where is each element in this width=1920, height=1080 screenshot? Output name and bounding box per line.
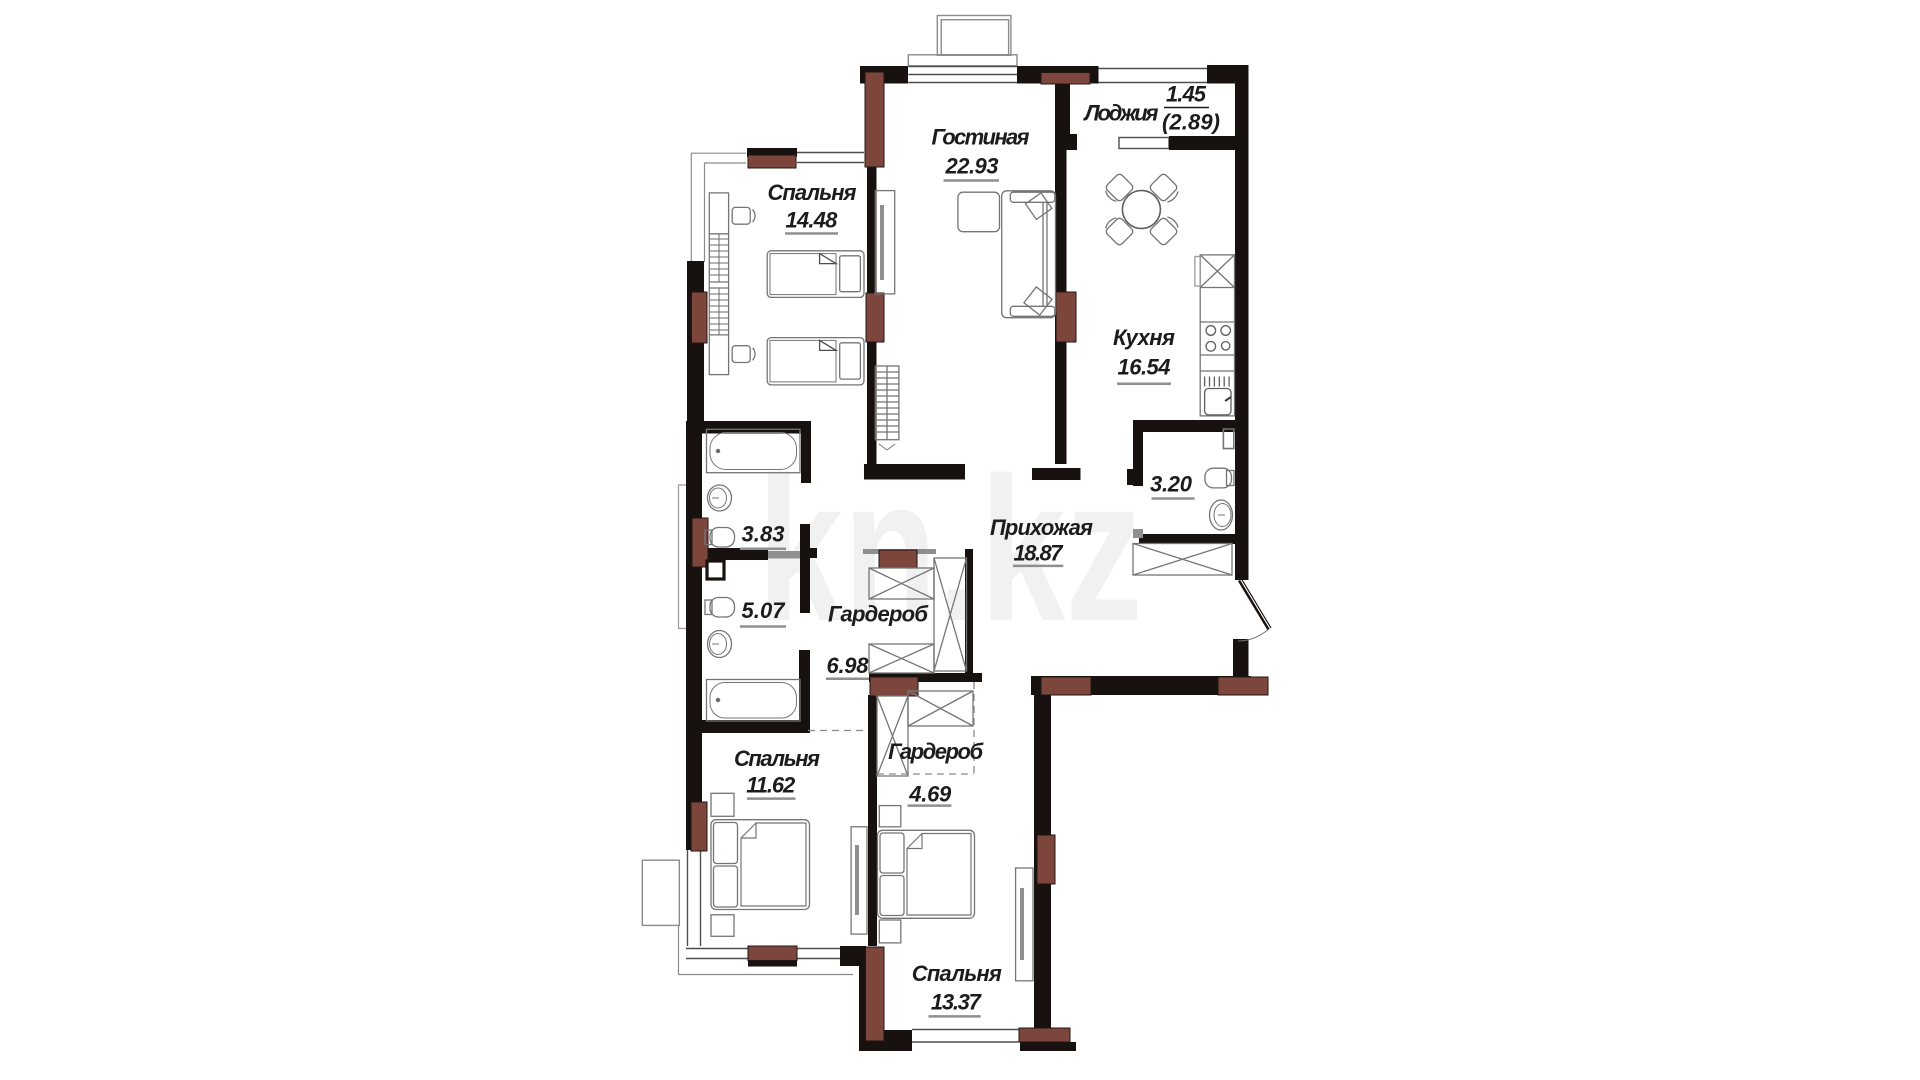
svg-text:6.98: 6.98: [827, 653, 870, 678]
svg-text:22.93: 22.93: [945, 153, 999, 178]
svg-text:Гостиная: Гостиная: [932, 124, 1030, 149]
svg-text:18.87: 18.87: [1014, 540, 1065, 565]
svg-text:13.37: 13.37: [931, 990, 983, 1015]
svg-text:Гардероб: Гардероб: [888, 739, 984, 764]
svg-text:Лоджия: Лоджия: [1083, 101, 1159, 126]
svg-text:3.83: 3.83: [742, 522, 785, 547]
svg-text:Прихожая: Прихожая: [990, 515, 1093, 540]
svg-text:3.20: 3.20: [1150, 472, 1193, 497]
svg-text:16.54: 16.54: [1118, 355, 1171, 380]
svg-text:1.45: 1.45: [1166, 82, 1207, 107]
svg-text:5.07: 5.07: [742, 598, 787, 623]
svg-text:Кухня: Кухня: [1113, 325, 1175, 350]
svg-text:Гардероб: Гардероб: [828, 602, 929, 627]
svg-text:11.62: 11.62: [746, 773, 796, 798]
svg-text:14.48: 14.48: [785, 208, 838, 233]
svg-text:Спальня: Спальня: [734, 746, 820, 771]
svg-text:(2.89): (2.89): [1162, 110, 1220, 135]
svg-text:Спальня: Спальня: [912, 961, 1002, 986]
svg-text:4.69: 4.69: [908, 781, 952, 806]
svg-text:Спальня: Спальня: [768, 180, 857, 205]
